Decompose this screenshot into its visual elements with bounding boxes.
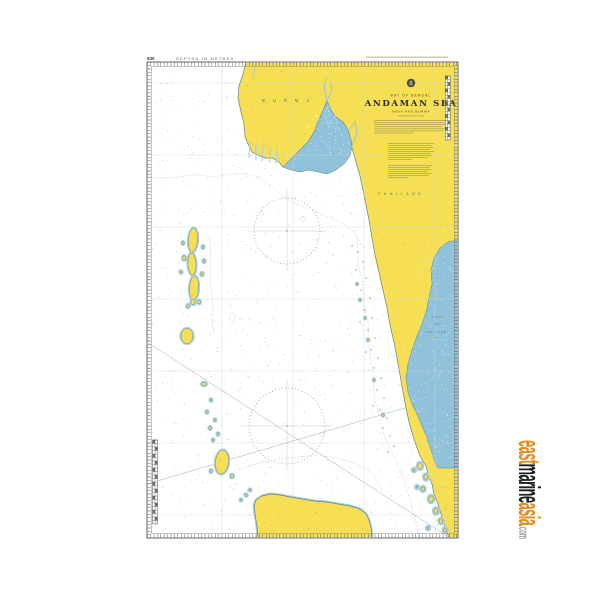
sea-area-label: BAY OF BENGAL bbox=[391, 94, 432, 98]
watermark-com: .com bbox=[516, 525, 532, 539]
label-burma: BURMA bbox=[262, 98, 317, 103]
label-thailand: THAILAND bbox=[378, 192, 425, 196]
label-gulf-2: OF bbox=[435, 322, 442, 326]
chart-subtitle: INDIA AND BURMA bbox=[392, 110, 431, 114]
chart-title: ANDAMAN SEA bbox=[364, 99, 458, 109]
scale-statement-bar bbox=[398, 116, 424, 117]
nautical-chart: 830 DEPTHS IN METRES bbox=[0, 0, 600, 600]
product-photo: 830 DEPTHS IN METRES bbox=[0, 0, 600, 600]
chart-number: 830 bbox=[147, 56, 155, 61]
label-gulf-3: THAILAND bbox=[425, 330, 447, 334]
watermark-marine: marine bbox=[512, 464, 547, 503]
margin-note-bar bbox=[366, 57, 448, 58]
watermark-east: east bbox=[512, 440, 547, 464]
depths-note: DEPTHS IN METRES bbox=[176, 56, 234, 61]
watermark-eastmarineasia: eastmarineasia.com bbox=[514, 440, 545, 539]
watermark-asia: asia bbox=[512, 502, 547, 525]
label-gulf-1: GULF bbox=[432, 315, 445, 319]
scale-ladder bbox=[153, 440, 158, 524]
